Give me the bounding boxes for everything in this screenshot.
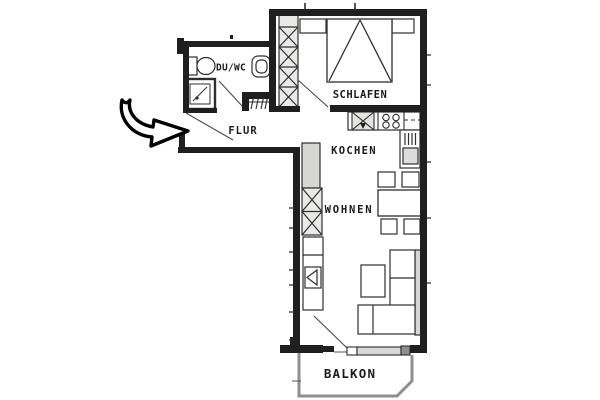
room-label-balkon: BALKON	[324, 368, 376, 381]
floor-plan-drawing	[0, 0, 600, 400]
washbasin-icon	[252, 56, 270, 77]
tv-cabinet-icon	[303, 237, 323, 310]
entrance-door-swing	[186, 113, 233, 140]
fridge-icon	[403, 148, 418, 164]
room-label-du-wc: DU/WC	[216, 63, 246, 73]
nightstand-left-icon	[300, 19, 326, 33]
nightstand-right-icon	[392, 19, 414, 33]
room-label-flur: FLUR	[228, 126, 257, 137]
dining-table-icon	[378, 190, 421, 216]
kitchen-tall-unit	[400, 130, 420, 168]
duwc-door-swing	[219, 81, 244, 108]
room-label-wohnen: WOHNEN	[325, 205, 374, 216]
room-label-kochen: KOCHEN	[331, 146, 377, 157]
coffee-table-icon	[361, 265, 385, 297]
bedroom-door-swing	[298, 80, 328, 107]
balcony-window	[334, 346, 410, 355]
balcony-door-swing	[314, 316, 347, 348]
wardrobe-icon	[279, 14, 298, 107]
room-label-schlafen: SCHLAFEN	[333, 90, 388, 101]
entrance-arrow-icon	[121, 100, 188, 146]
kitchen-sideboard	[302, 143, 320, 188]
sink-icon	[352, 112, 374, 130]
double-bed-icon	[327, 19, 392, 82]
floor-plan: DU/WC SCHLAFEN FLUR KOCHEN WOHNEN BALKON	[0, 0, 600, 400]
toilet-icon	[188, 57, 215, 75]
shower-icon	[185, 79, 215, 109]
shelf-cabinet-icon	[302, 188, 322, 235]
